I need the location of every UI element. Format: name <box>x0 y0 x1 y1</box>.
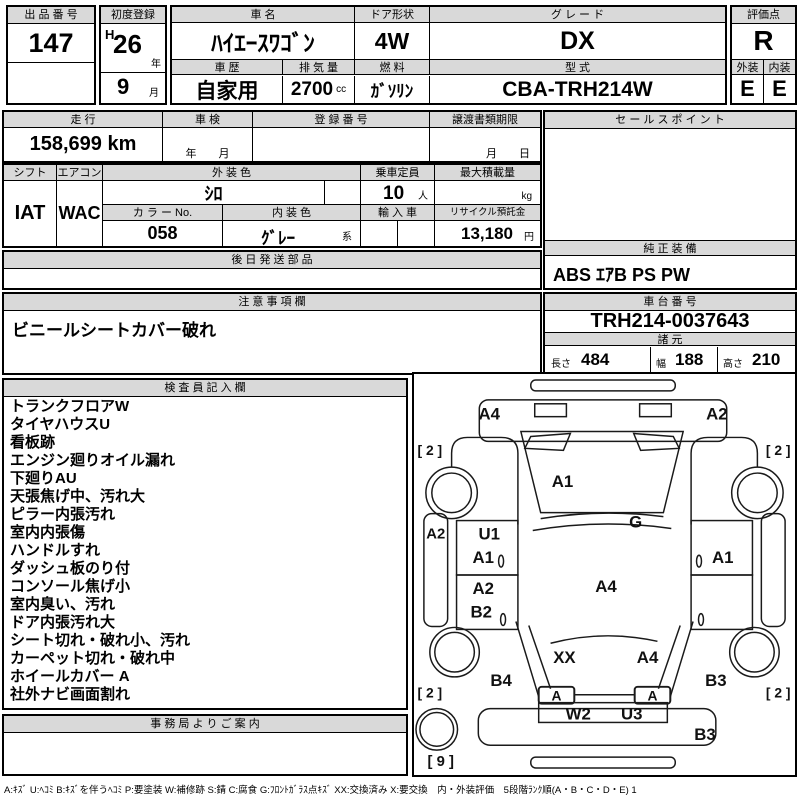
diagram-label: A2 <box>706 405 728 424</box>
inspector-line: コンソール焦げ小 <box>10 578 404 596</box>
later-parts-label: 後 日 発 送 部 品 <box>4 252 540 269</box>
car-outline <box>416 380 785 768</box>
first-registration-year-cell: H 26 年 <box>101 23 165 73</box>
score-value: R <box>732 23 795 59</box>
fuel-value: ｶﾞｿﾘﾝ <box>354 76 429 103</box>
diagram-label: A1 <box>473 548 495 567</box>
inspection-value: 年 月 <box>162 128 252 161</box>
exterior-grade-label: 外装 <box>732 59 763 75</box>
exterior-grade-value: E <box>732 75 763 103</box>
sales-point-label: セ ー ル ス ポ イ ン ト <box>545 112 795 129</box>
inspector-label: 検 査 員 記 入 欄 <box>4 380 406 397</box>
month-unit: 月 <box>149 84 159 99</box>
legend-text: A:ｷｽﾞ U:ﾍｺﾐ B:ｷｽﾞを伴うﾍｺﾐ P:要塗装 W:補修跡 S:錆 … <box>4 782 798 796</box>
exterior-color-label: 外 装 色 <box>102 165 360 181</box>
displacement-value: 2700 <box>291 79 333 101</box>
exterior-color-value: ｼﾛ <box>102 181 324 205</box>
specs-band: シフト エアコン 外 装 色 乗車定員 最大積載量 IAT WAC ｼﾛ 10 … <box>2 163 542 248</box>
diagram-label: U1 <box>478 524 500 543</box>
dimensions-label: 諸 元 <box>545 332 795 346</box>
inspector-line: タイヤハウスU <box>10 416 404 434</box>
diagram-label: B3 <box>705 671 727 690</box>
diagram-label: B4 <box>490 671 512 690</box>
height-label: 高さ <box>723 355 743 370</box>
inspector-line: 室内内張傷 <box>10 524 404 542</box>
inspector-line: ドア内張汚れ大 <box>10 614 404 632</box>
reg-number-label: 登 録 番 号 <box>252 112 429 128</box>
capacity-value-cell: 10 人 <box>360 181 434 205</box>
displacement-unit: cc <box>336 84 346 95</box>
imported-label: 輸 入 車 <box>360 205 434 221</box>
width-label: 幅 <box>656 355 666 370</box>
inspector-line: ハンドルすれ <box>10 542 404 560</box>
diagram-label: B3 <box>694 725 716 744</box>
width-value: 188 <box>675 350 703 370</box>
door-shape-label: ドア形状 <box>354 7 429 23</box>
reg-number-value <box>252 128 429 161</box>
displacement-label: 排 気 量 <box>282 59 354 75</box>
diagram-label: W2 <box>566 704 591 723</box>
sales-point-box: セ ー ル ス ポ イ ン ト 純 正 装 備 ABS ｴｱB PS PW <box>543 110 797 290</box>
later-parts-value <box>4 268 540 288</box>
capacity-unit: 人 <box>418 187 428 202</box>
recycle-deposit-unit: 円 <box>524 228 534 243</box>
diagram-label: A4 <box>595 577 617 596</box>
factory-equipment-value: ABS ｴｱB PS PW <box>545 257 795 288</box>
exterior-color-subcell <box>324 181 360 205</box>
diagram-label: A4 <box>478 405 500 424</box>
interior-grade-value: E <box>763 75 795 103</box>
aircon-value: WAC <box>56 181 102 246</box>
color-no-label: カ ラ ー No. <box>102 205 222 221</box>
capacity-value: 10 <box>383 183 404 205</box>
length-value: 484 <box>581 350 609 370</box>
factory-equipment-label: 純 正 装 備 <box>545 240 795 256</box>
chassis-box: 車 台 番 号 TRH214-0037643 諸 元 長さ 484 幅 188 … <box>543 292 797 375</box>
diagram-label: XX <box>553 648 576 667</box>
history-value: 自家用 <box>172 76 282 103</box>
mileage-label: 走 行 <box>4 112 162 128</box>
score-label: 評価点 <box>732 7 795 24</box>
interior-grade-label: 内装 <box>763 59 795 75</box>
diagram-label: U3 <box>621 704 643 723</box>
imported-cell-2 <box>397 221 434 246</box>
chassis-value: TRH214-0037643 <box>545 310 795 332</box>
notes-label: 注 意 事 項 欄 <box>4 294 540 311</box>
recycle-deposit-value: 13,180 <box>461 224 513 244</box>
aircon-label: エアコン <box>56 165 102 181</box>
max-load-unit: kg <box>521 191 532 202</box>
diagram-label: A2 <box>473 579 495 598</box>
inspector-line: 社外ナビ画面割れ <box>10 686 404 704</box>
displacement-value-cell: 2700 cc <box>282 76 354 103</box>
inspection-label: 車 検 <box>162 112 252 128</box>
diagram-label: A2 <box>426 526 445 542</box>
inspector-line: 下廻りAU <box>10 470 404 488</box>
inspector-line: 看板跡 <box>10 434 404 452</box>
inspector-line: 天張焦げ中、汚れ大 <box>10 488 404 506</box>
shift-label: シフト <box>4 165 56 181</box>
grade-label: グ レ ー ド <box>429 7 725 23</box>
color-no-value: 058 <box>102 221 222 246</box>
max-load-value-cell: kg <box>434 181 540 205</box>
notes-value: ビニールシートカバー破れ <box>4 310 540 373</box>
first-registration-label: 初度登録 <box>101 7 165 24</box>
month-value: 9 <box>117 74 129 100</box>
interior-color-suffix: 系 <box>342 228 352 243</box>
inspector-line: シート切れ・破れ小、汚れ <box>10 632 404 650</box>
transfer-deadline-value: 月 日 <box>429 128 540 161</box>
inspector-line: カーペット切れ・破れ中 <box>10 650 404 668</box>
car-name-label: 車 名 <box>172 7 354 23</box>
interior-color-value: ｸﾞﾚｰ <box>261 224 295 249</box>
max-load-label: 最大積載量 <box>434 165 540 181</box>
year-unit: 年 <box>151 55 161 70</box>
inspector-line: ホイールカバー A <box>10 668 404 686</box>
width-cell: 幅 188 <box>650 347 717 373</box>
diagram-label: G <box>629 512 642 531</box>
inspector-line: ピラー内張汚れ <box>10 506 404 524</box>
model-code-value: CBA-TRH214W <box>429 76 725 103</box>
inspector-line: トランクフロアW <box>10 398 404 416</box>
car-name-value: ﾊｲｴｰｽﾜｺﾞﾝ <box>172 23 354 59</box>
recycle-deposit-label: リサイクル預託金 <box>434 205 540 221</box>
length-cell: 長さ 484 <box>545 347 650 373</box>
diagram-label: [ 2 ] <box>766 685 791 701</box>
auction-sheet: 出 品 番 号 147 初度登録 H 26 年 9 月 車 名 ドア形状 グ レ… <box>0 0 800 800</box>
interior-color-label: 内 装 色 <box>222 205 360 221</box>
first-registration-month-cell: 9 月 <box>101 73 165 103</box>
chassis-label: 車 台 番 号 <box>545 294 795 311</box>
lot-number-box: 出 品 番 号 147 <box>6 5 96 105</box>
lot-number-label: 出 品 番 号 <box>8 7 94 24</box>
inspector-line: 室内臭い、汚れ <box>10 596 404 614</box>
office-notice-box: 事 務 局 よ り ご 案 内 <box>2 714 408 776</box>
mileage-value: 158,699 km <box>4 128 162 161</box>
score-box: 評価点 R 外装 内装 E E <box>730 5 797 105</box>
height-cell: 高さ 210 <box>717 347 795 373</box>
inspector-line: ダッシュ板のり付 <box>10 560 404 578</box>
diagram-label: A <box>552 688 562 704</box>
interior-color-cell: ｸﾞﾚｰ 系 <box>222 221 360 246</box>
vehicle-header-box: 車 名 ドア形状 グ レ ー ド ﾊｲｴｰｽﾜｺﾞﾝ 4W DX 車 歴 排 気… <box>170 5 727 105</box>
fuel-label: 燃 料 <box>354 59 429 75</box>
door-shape-value: 4W <box>354 23 429 59</box>
notes-box: 注 意 事 項 欄 ビニールシートカバー破れ <box>2 292 542 375</box>
registration-band: 走 行 車 検 登 録 番 号 譲渡書類期限 158,699 km 年 月 月 … <box>2 110 542 163</box>
imported-cell-1 <box>360 221 397 246</box>
inspector-lines: トランクフロアW タイヤハウスU 看板跡 エンジン廻りオイル漏れ 下廻りAU 天… <box>10 398 404 704</box>
recycle-deposit-cell: 13,180 円 <box>434 221 540 246</box>
transfer-deadline-label: 譲渡書類期限 <box>429 112 540 128</box>
office-notice-label: 事 務 局 よ り ご 案 内 <box>4 716 406 733</box>
diagram-label: A <box>647 688 657 704</box>
diagram-label: [ 2 ] <box>418 685 443 701</box>
grade-value: DX <box>429 23 725 59</box>
office-notice-value <box>4 732 406 772</box>
history-label: 車 歴 <box>172 59 282 75</box>
year-value: 26 <box>113 29 142 60</box>
diagram-label: A4 <box>637 648 659 667</box>
inspector-line: エンジン廻りオイル漏れ <box>10 452 404 470</box>
length-label: 長さ <box>551 355 571 370</box>
diagram-label: B2 <box>471 603 493 622</box>
diagram-labels: A4 A2 [ 2 ] [ 2 ] A1 G A2 U1 A1 A1 A2 B2… <box>418 405 791 770</box>
sales-point-value <box>545 128 795 240</box>
inspector-box: 検 査 員 記 入 欄 トランクフロアW タイヤハウスU 看板跡 エンジン廻りオ… <box>2 378 408 710</box>
diagram-label: A1 <box>552 472 574 491</box>
shift-value: IAT <box>4 181 56 246</box>
capacity-label: 乗車定員 <box>360 165 434 181</box>
vehicle-diagram: A4 A2 [ 2 ] [ 2 ] A1 G A2 U1 A1 A1 A2 B2… <box>414 374 795 775</box>
diagram-box: A4 A2 [ 2 ] [ 2 ] A1 G A2 U1 A1 A1 A2 B2… <box>412 372 797 777</box>
diagram-label: [ 9 ] <box>428 754 454 770</box>
lot-number-value: 147 <box>8 24 94 63</box>
model-code-label: 型 式 <box>429 59 725 75</box>
diagram-label: [ 2 ] <box>418 442 443 458</box>
first-registration-box: 初度登録 H 26 年 9 月 <box>99 5 167 105</box>
later-parts-box: 後 日 発 送 部 品 <box>2 250 542 290</box>
diagram-label: A1 <box>712 548 734 567</box>
height-value: 210 <box>752 350 780 370</box>
diagram-label: [ 2 ] <box>766 442 791 458</box>
